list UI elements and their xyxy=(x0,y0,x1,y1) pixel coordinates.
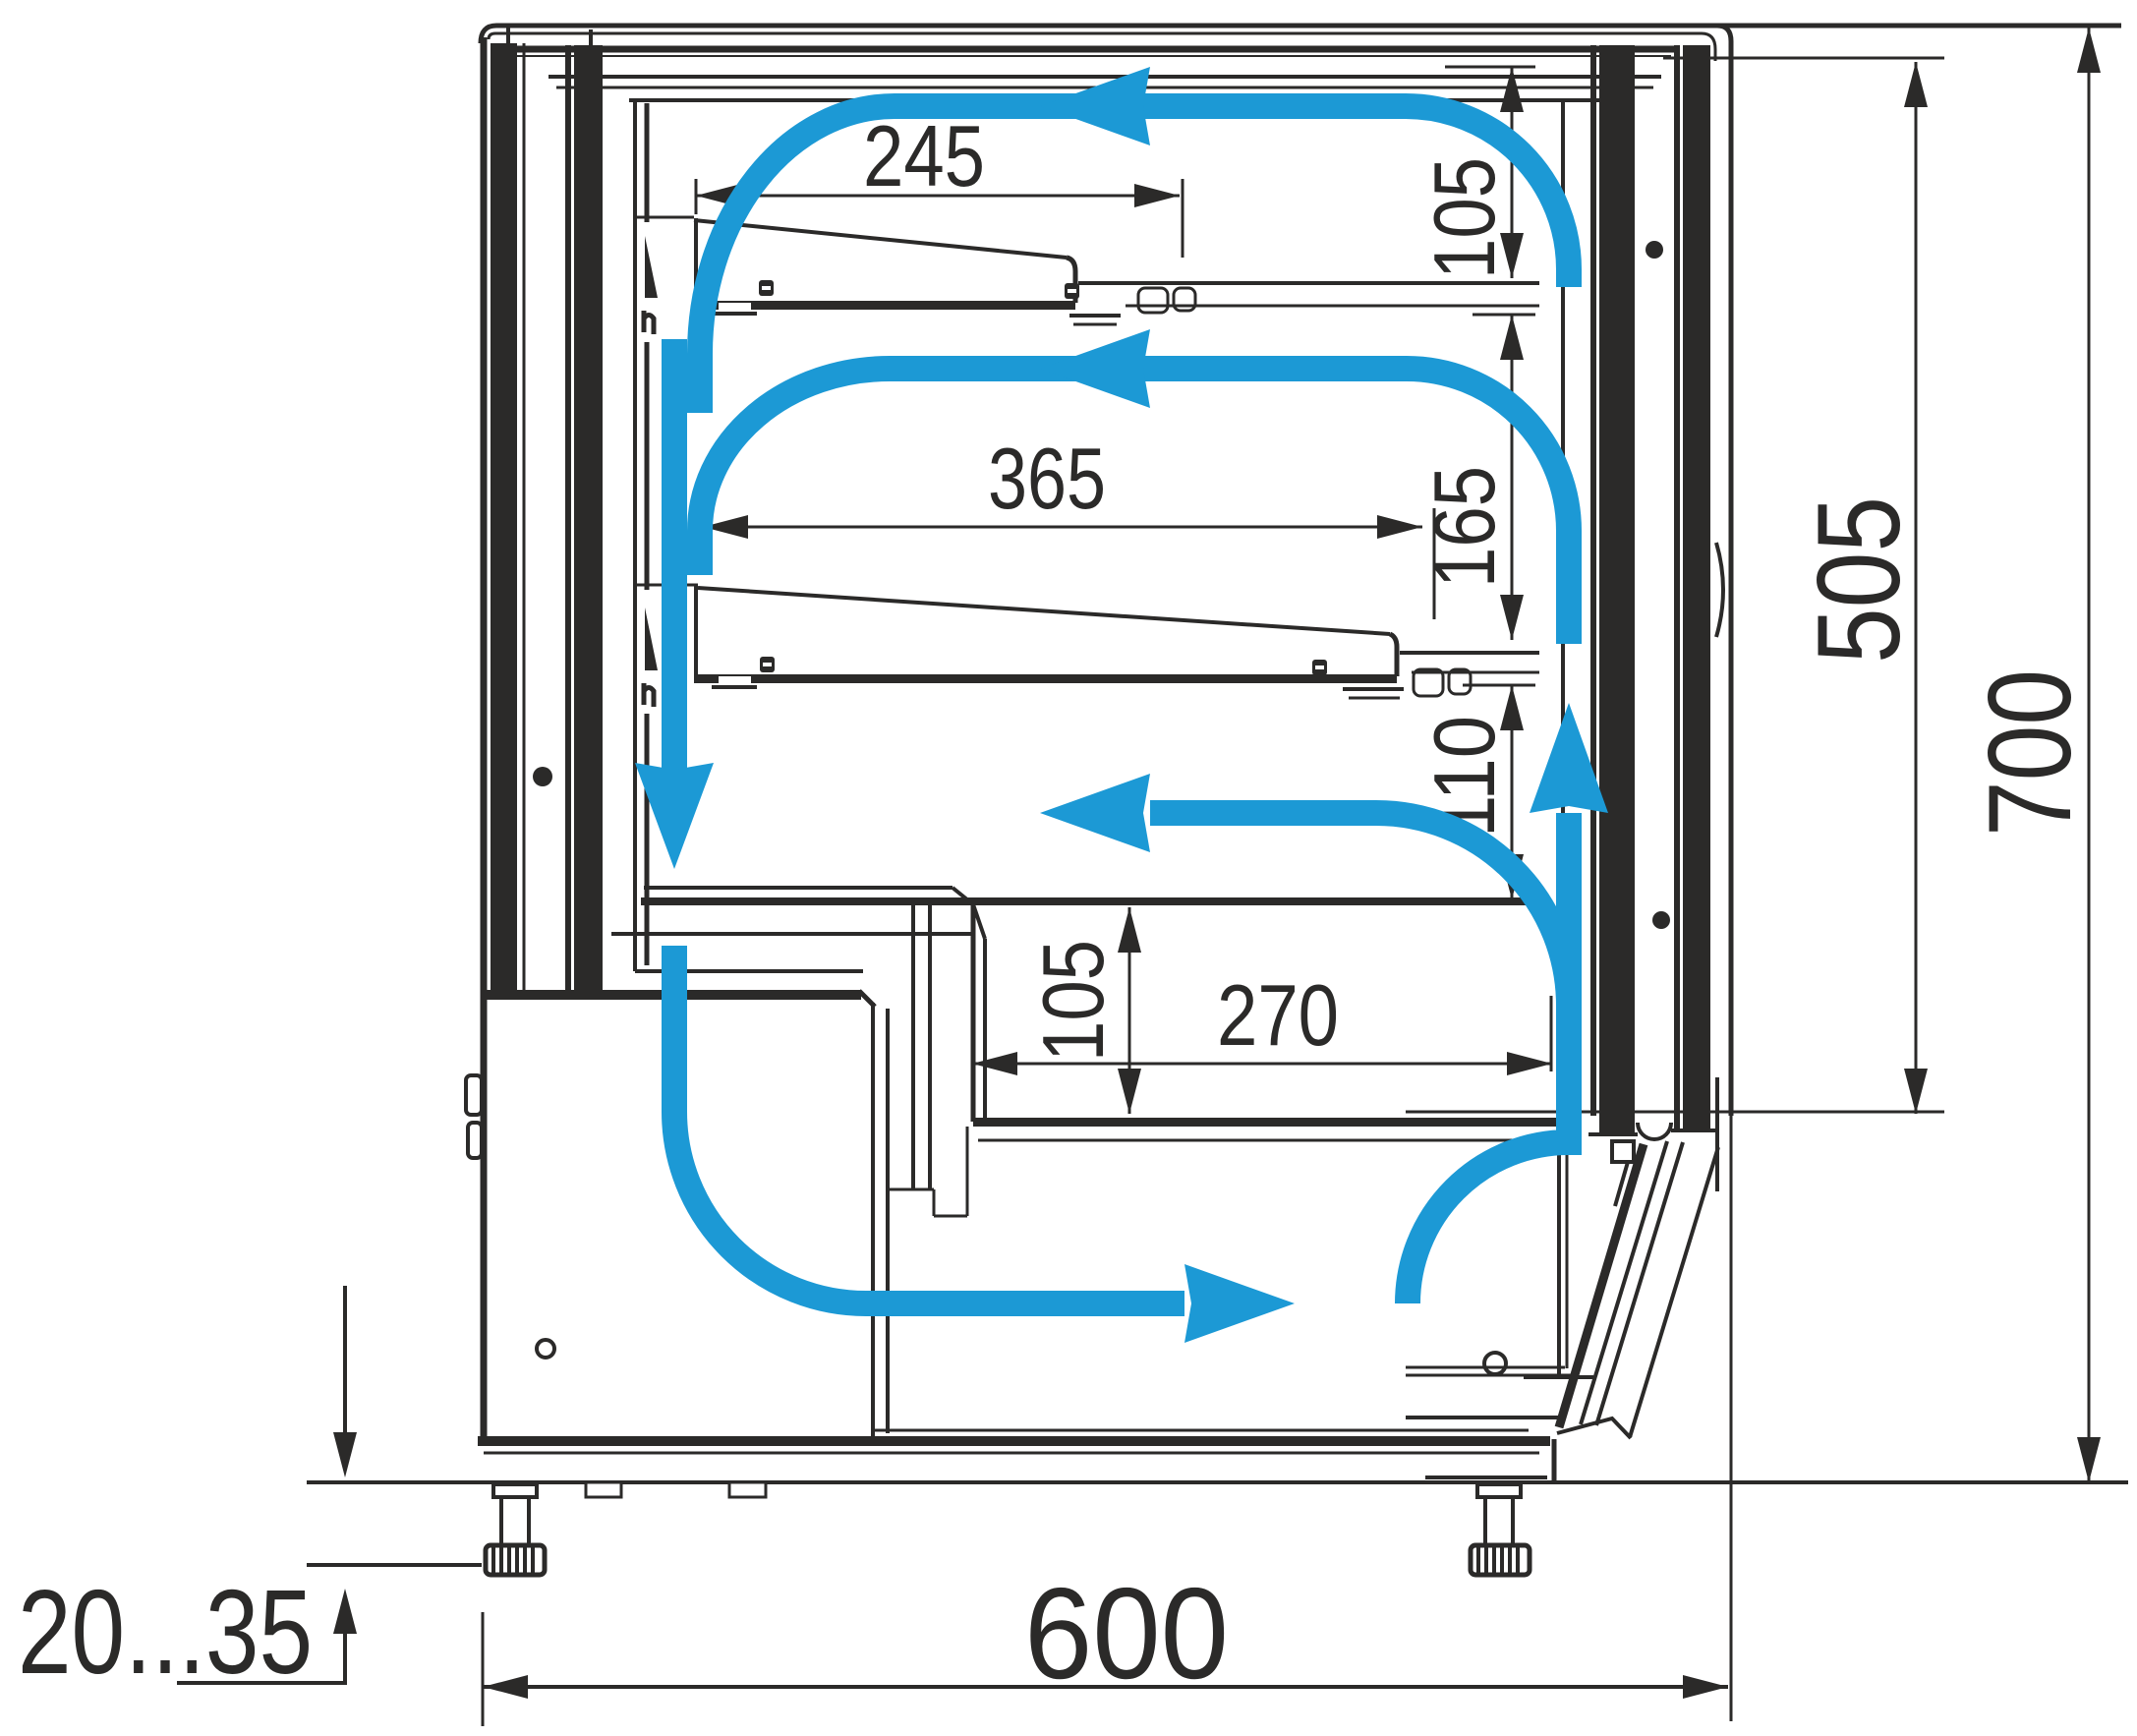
svg-text:20...35: 20...35 xyxy=(18,1565,313,1699)
svg-text:600: 600 xyxy=(1024,1561,1229,1706)
svg-text:105: 105 xyxy=(1415,157,1513,279)
svg-text:105: 105 xyxy=(1024,940,1122,1062)
svg-text:505: 505 xyxy=(1793,496,1925,664)
svg-text:700: 700 xyxy=(1964,669,2096,837)
svg-text:245: 245 xyxy=(863,107,985,204)
svg-text:165: 165 xyxy=(1415,466,1513,588)
svg-text:365: 365 xyxy=(988,430,1106,527)
svg-text:270: 270 xyxy=(1217,966,1339,1064)
